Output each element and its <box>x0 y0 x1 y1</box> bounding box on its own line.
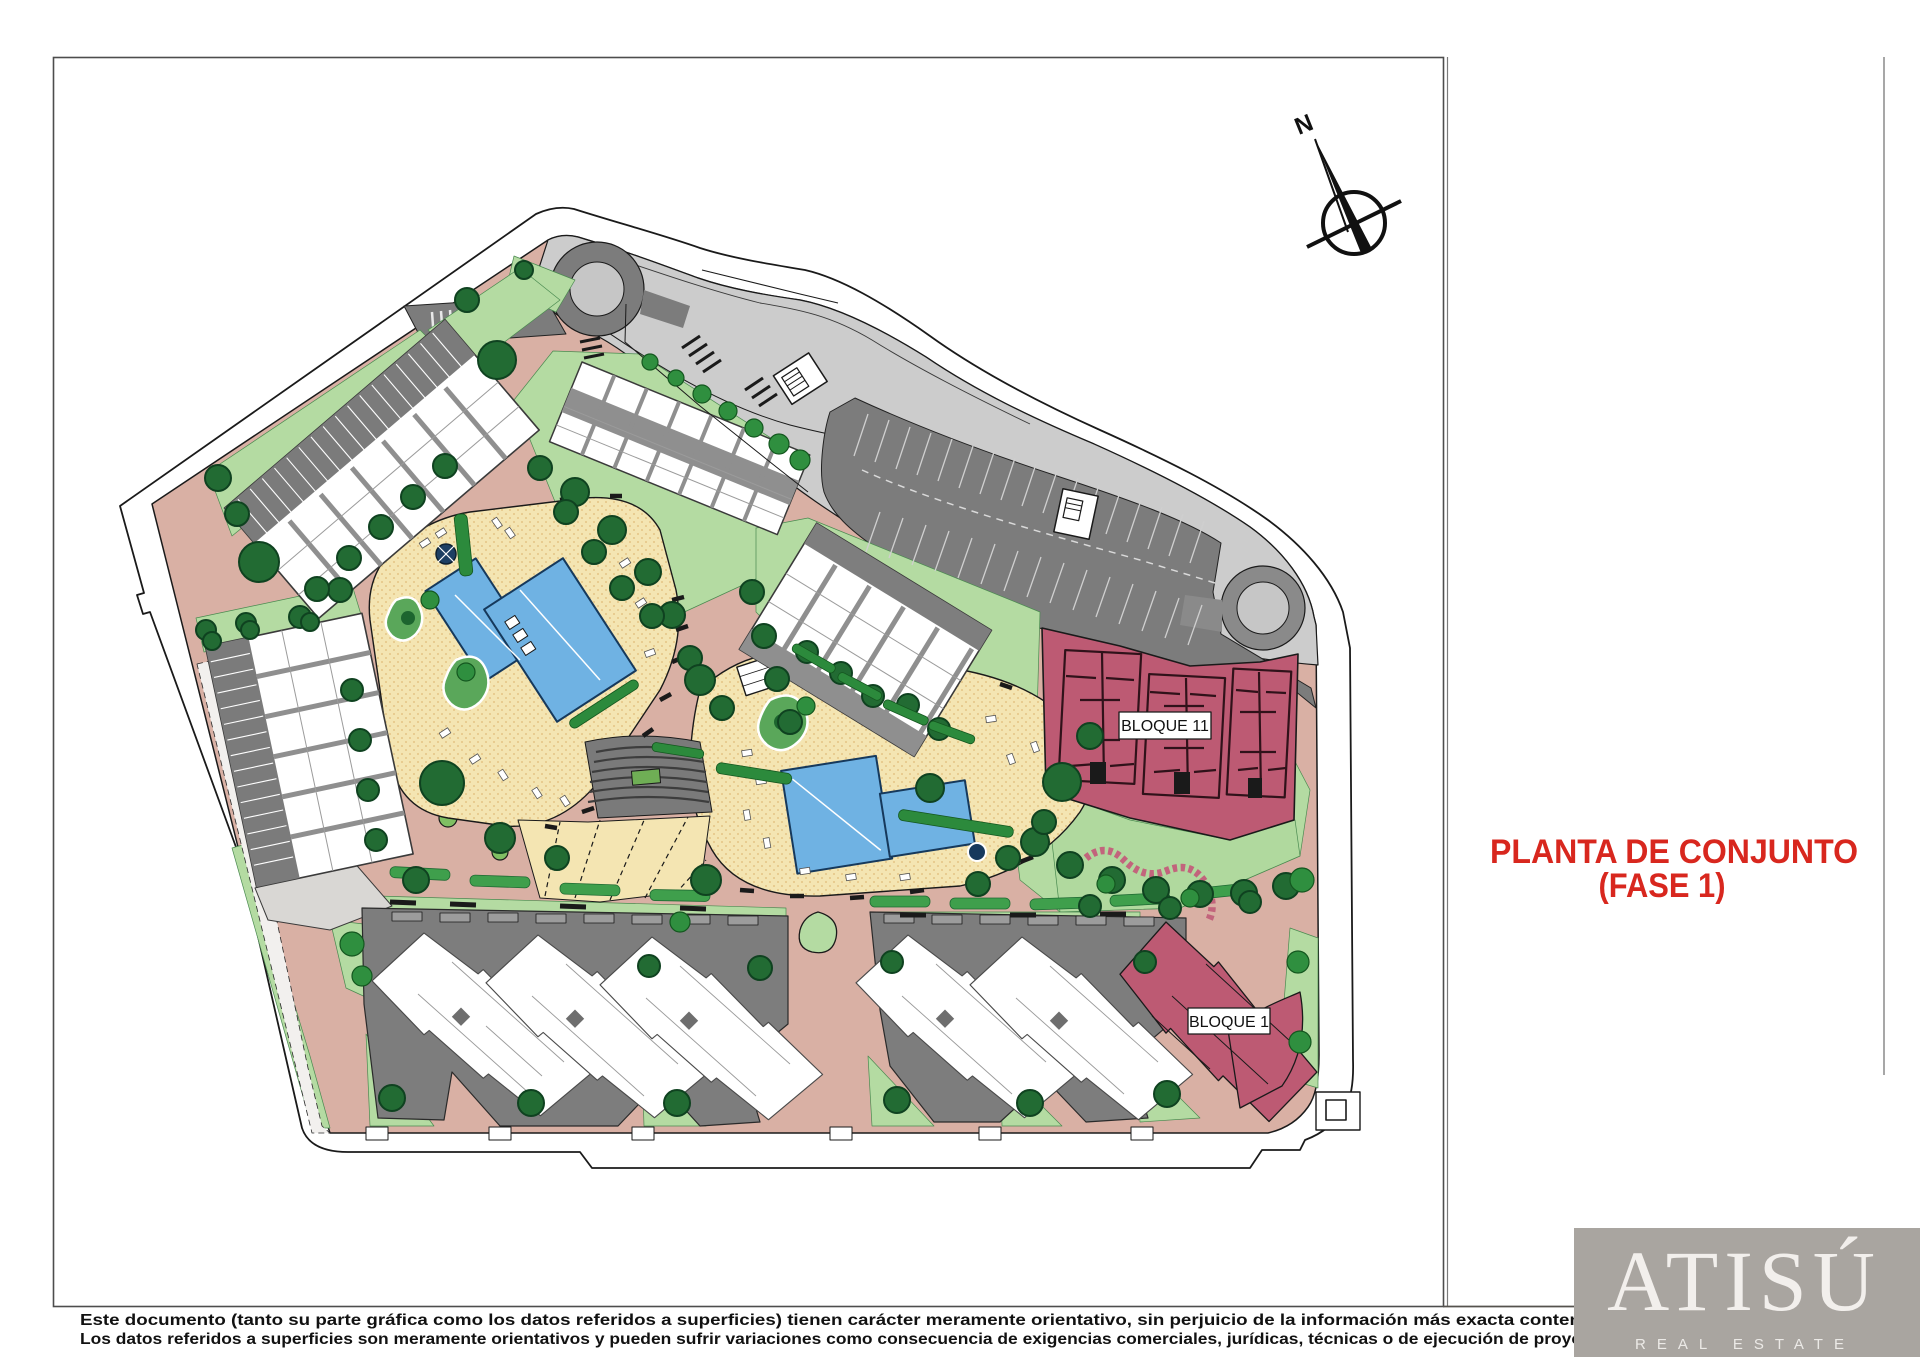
svg-text:BLOQUE 11: BLOQUE 11 <box>1121 718 1209 735</box>
svg-text:Este documento (tanto su parte: Este documento (tanto su parte gráfica c… <box>80 1312 1608 1329</box>
svg-text:Los datos referidos a superfic: Los datos referidos a superficies son me… <box>80 1331 1612 1348</box>
svg-text:PLANTA DE CONJUNTO: PLANTA DE CONJUNTO <box>1490 833 1858 871</box>
svg-text:ATISÚ: ATISÚ <box>1607 1233 1881 1329</box>
svg-text:(FASE 1): (FASE 1) <box>1599 867 1726 905</box>
svg-text:REAL ESTATE: REAL ESTATE <box>1635 1336 1855 1353</box>
svg-text:BLOQUE 1: BLOQUE 1 <box>1189 1014 1269 1031</box>
